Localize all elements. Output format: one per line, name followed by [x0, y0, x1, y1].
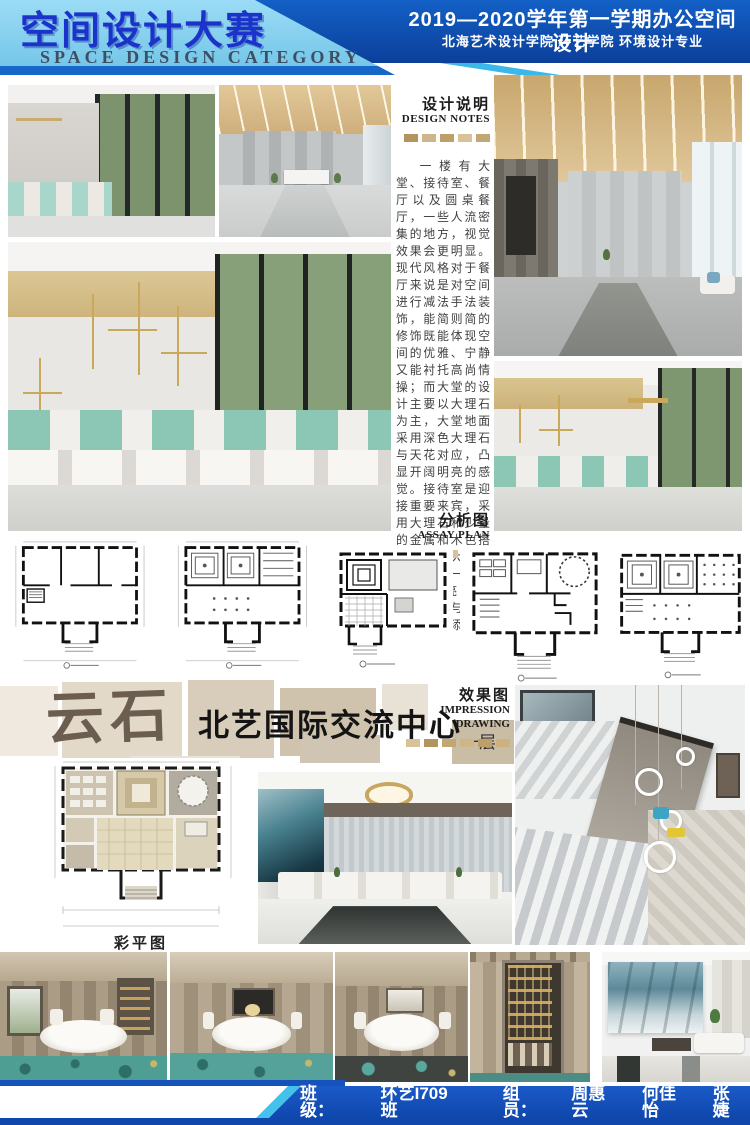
header-cyan-accent [430, 63, 590, 75]
floor-plan-drawing-5 [612, 548, 747, 686]
floor-plan-drawing-2 [168, 540, 315, 672]
footer-credits: 班级： 环艺I709班 组员： 周惠云 何佳怡 张婕 [300, 1088, 745, 1116]
class-value: 环艺I709班 [381, 1085, 461, 1119]
render-stairwell-photo [515, 685, 745, 945]
design-notes-header: 设计说明 DESIGN NOTES [398, 96, 490, 142]
impression-header: 效果图 IMPRESSION DRAWING [404, 687, 510, 747]
separator-squares [404, 739, 510, 747]
color-plan-caption: 彩平图 [35, 936, 247, 951]
footer-bottom-strip [0, 1118, 750, 1125]
class-label: 班级： [300, 1085, 349, 1119]
footer-top-bar [0, 1080, 345, 1086]
footer-cyan-accent [0, 1086, 320, 1118]
render-restaurant-seating-photo [494, 361, 742, 531]
poster-title: 空间设计大赛 [20, 12, 266, 51]
assay-plan-title-cn: 分析图 [398, 512, 490, 529]
render-lobby-reception-photo [219, 85, 391, 237]
members-label: 组员： [503, 1085, 552, 1119]
render-restaurant-hall-photo [8, 242, 391, 531]
impression-title-en: IMPRESSION DRAWING [404, 704, 510, 732]
render-wine-cabinet-photo [470, 952, 590, 1082]
member-name: 何佳怡 [642, 1085, 691, 1119]
department-line: 北海艺术设计学院 环艺学院 环境设计专业 [400, 34, 745, 50]
render-round-dining-photo-3 [335, 952, 468, 1082]
header-blue-strip [0, 66, 420, 75]
render-reception-room-photo [258, 772, 512, 944]
design-poster: 2019—2020学年第一学期办公空间设计 北海艺术设计学院 环艺学院 环境设计… [0, 0, 750, 1125]
color-floor-plan [35, 758, 247, 936]
render-round-dining-photo-1 [0, 952, 167, 1082]
design-notes-title-cn: 设计说明 [398, 96, 490, 113]
render-lobby-corridor-photo [494, 75, 742, 356]
impression-title-cn: 效果图 [404, 687, 510, 704]
assay-plan-title-en: ASSAY PLAN [398, 529, 490, 543]
floor-plan-drawing-1 [8, 540, 150, 672]
member-name: 张婕 [713, 1085, 745, 1119]
design-notes-title-en: DESIGN NOTES [398, 113, 490, 127]
yunshi-logo: 云石 [45, 686, 175, 748]
member-name: 周惠云 [571, 1085, 620, 1119]
render-dining-corner-photo [8, 85, 215, 237]
floor-plan-drawing-4 [460, 548, 608, 686]
render-living-room-photo [602, 952, 750, 1082]
floor-plan-drawing-3 [333, 548, 453, 673]
render-round-dining-photo-2 [170, 952, 333, 1082]
poster-subtitle: SPACE DESIGN CATEGORY [40, 48, 362, 66]
separator-squares [398, 134, 490, 142]
